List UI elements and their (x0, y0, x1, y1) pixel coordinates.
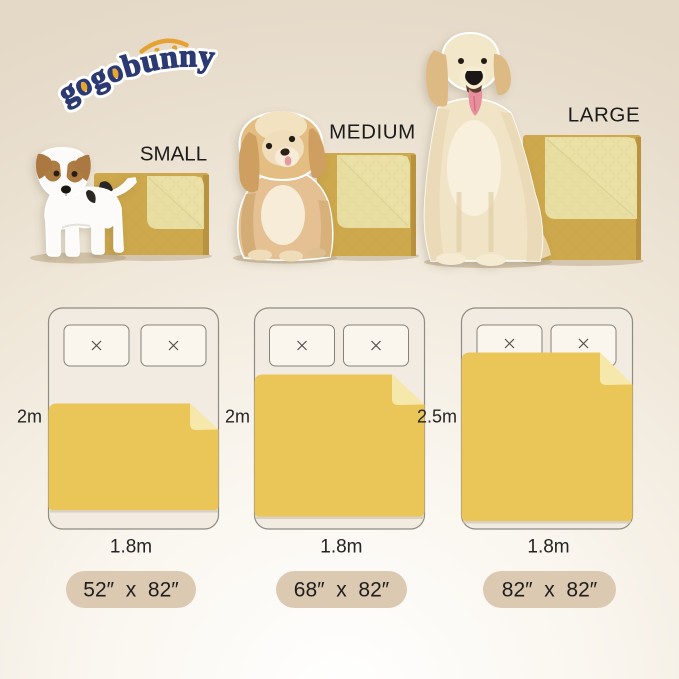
svg-text:2m: 2m (17, 406, 42, 426)
svg-text:2.5m: 2.5m (417, 406, 457, 426)
svg-text:1.8m: 1.8m (320, 537, 362, 558)
svg-text:MEDIUM: MEDIUM (329, 121, 416, 144)
svg-text:LARGE: LARGE (568, 104, 641, 127)
svg-text:1.8m: 1.8m (527, 537, 569, 558)
svg-text:68″ x 82″: 68″ x 82″ (294, 579, 390, 602)
svg-text:gogobunny: gogobunny (52, 37, 217, 111)
svg-text:2m: 2m (225, 406, 250, 426)
svg-text:82″ x 82″: 82″ x 82″ (502, 579, 598, 602)
svg-text:52″ x 82″: 52″ x 82″ (83, 579, 179, 602)
svg-text:SMALL: SMALL (140, 143, 207, 166)
svg-text:1.8m: 1.8m (110, 537, 152, 558)
